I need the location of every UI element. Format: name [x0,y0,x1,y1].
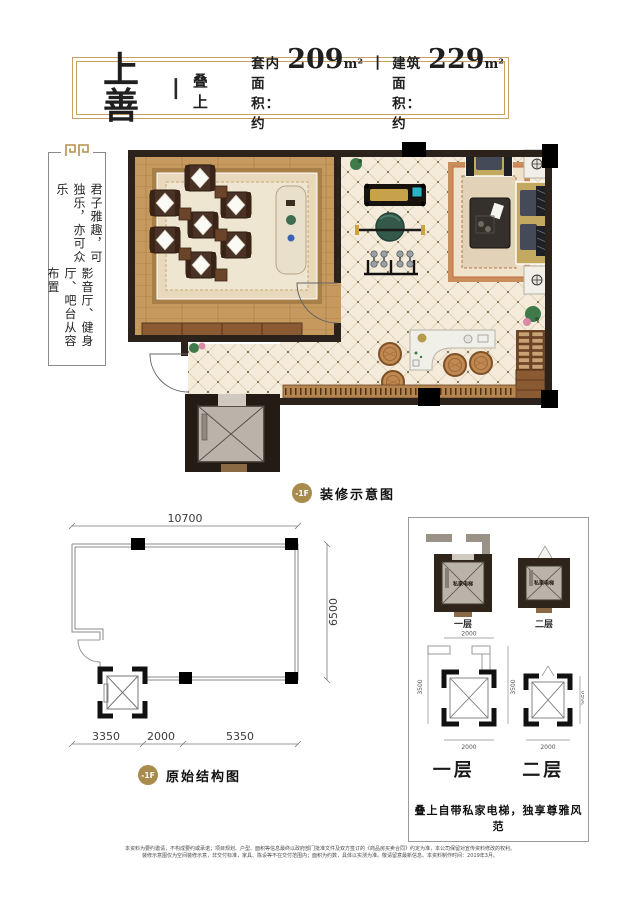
elevator-2f-structural: 2050 2000 [522,666,584,751]
brochure-page: 上善 丨 叠上 套内面积：约209m² 丨 建筑面积：约229m² 君子雅趣，可… [0,0,640,920]
structural-elevator [97,666,148,719]
elev2-dim-bottom: 2000 [540,744,555,751]
title-box: 上善 丨 叠上 套内面积：约209m² 丨 建筑面积：约229m² [72,57,509,119]
lamp-icon [532,275,542,285]
title-box-inner: 上善 丨 叠上 套内面积：约209m² 丨 建筑面积：约229m² [76,61,505,115]
media-console-table [276,186,306,274]
entry-hall-floor [188,344,280,394]
structural-columns [131,538,298,684]
floor-badge-icon: -1F [138,765,158,785]
decorated-plan-caption: -1F 装修示意图 [292,483,395,503]
elev1-dim-left: 3500 [417,679,424,694]
title-divider: 丨 [165,72,187,104]
side-note-column-2: 影音厅、健身厅、吧台从容布置 [49,267,96,357]
elev1-dim-right: 3500 [510,679,517,694]
elevator-panel: 私家电梯 一层 私家电梯 二层 [408,517,589,842]
disclaimer-line-1: 本资料为要约邀请，不构成要约或承诺；项目规划、户型、面积等信息最终以政府部门批准… [60,846,580,853]
elevator-2f-decorated: 私家电梯 二层 [518,546,570,630]
elev2-dim-right: 2050 [581,690,584,705]
floor-badge-icon: -1F [292,483,312,503]
lounge-sofa [516,182,548,264]
indoor-area-unit: m² [344,57,363,72]
decorated-floor-plan [128,142,558,474]
elev1-dim-top: 2000 [461,631,476,638]
elev1-dim-bottom: 2000 [461,744,476,751]
side-note-column-1: 君子雅趣，可独乐，亦可众乐 [49,183,105,267]
elevator-2f-cab-text: 私家电梯 [533,580,554,587]
private-elevator [185,394,280,472]
page-title: 上善 [103,52,163,124]
indoor-area-value: 209 [287,44,343,75]
elevator-1f-cab-text: 私家电梯 [452,581,473,588]
elevator-tagline: 叠上自带私家电梯，独享尊雅风范 [409,802,588,834]
elevator-1f-decorated: 私家电梯 一层 [426,534,492,630]
area-separator: 丨 [370,52,385,73]
baluster-cabinets [283,385,516,398]
structural-plan-label: 原始结构图 [166,766,241,785]
structural-floor-plan: 10700 6500 3350 2000 5350 [55,512,355,762]
elevator-decorated-diagrams: 私家电梯 一层 私家电梯 二层 [414,528,584,632]
side-note-text: 君子雅趣，可独乐，亦可众乐 影音厅、健身厅、吧台从容布置 [49,153,105,365]
title-tag: 叠上 [193,70,217,112]
disclaimer: 本资料为要约邀请，不构成要约或承诺；项目规划、户型、面积等信息最终以政府部门批准… [60,846,580,860]
building-area-label: 建筑面积：约 [392,52,428,132]
dim-top: 10700 [168,512,203,525]
wine-rack [516,330,545,400]
dim-bottom-2: 2000 [147,730,175,743]
dim-bottom-1: 3350 [92,730,120,743]
label-first-floor: 一层 [409,756,499,782]
elevator-1f-label: 一层 [454,619,472,630]
structural-plan-caption: -1F 原始结构图 [138,765,241,785]
building-area-value: 229 [428,44,484,75]
decorated-plan-label: 装修示意图 [320,484,395,503]
elevator-floor-labels: 一层 二层 [409,756,588,782]
media-room-cabinets [142,323,302,336]
elevator-2f-label: 二层 [535,619,553,630]
lamp-icon [532,159,542,169]
dim-bottom-3: 5350 [226,730,254,743]
label-second-floor: 二层 [499,756,589,782]
building-area-unit: m² [485,57,504,72]
elevator-structural-diagrams: 2000 3500 3500 2000 [414,630,584,754]
area-info: 套内面积：约209m² 丨 建筑面积：约229m² [251,44,504,132]
indoor-area-label: 套内面积：约 [251,52,287,132]
treadmill [364,184,426,207]
side-note-box: 君子雅趣，可独乐，亦可众乐 影音厅、健身厅、吧台从容布置 [48,152,106,366]
structural-outline [72,544,298,680]
elevator-1f-structural: 2000 3500 3500 2000 [417,631,517,752]
dim-right: 6500 [327,598,340,626]
structural-dimensions [69,523,330,747]
disclaimer-line-2: 装修示意图仅为空间装修示意，非交付标准，家具、陈设等不在交付范围内；面积为约数，… [60,853,580,860]
coffee-table [470,198,510,248]
